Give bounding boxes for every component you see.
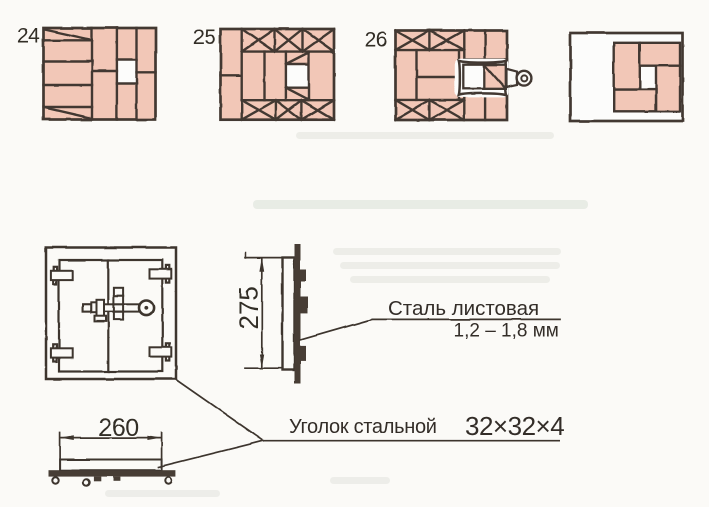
svg-text:32×32×4: 32×32×4	[465, 411, 564, 441]
svg-text:25: 25	[193, 26, 215, 49]
svg-text:Уголок стальной: Уголок стальной	[289, 416, 437, 438]
svg-text:Сталь листовая: Сталь листовая	[388, 297, 539, 320]
svg-text:275: 275	[234, 286, 264, 329]
svg-text:26: 26	[365, 29, 387, 52]
svg-text:24: 24	[17, 25, 40, 48]
svg-text:1,2 – 1,8 мм: 1,2 – 1,8 мм	[454, 320, 559, 341]
svg-text:260: 260	[99, 414, 139, 442]
